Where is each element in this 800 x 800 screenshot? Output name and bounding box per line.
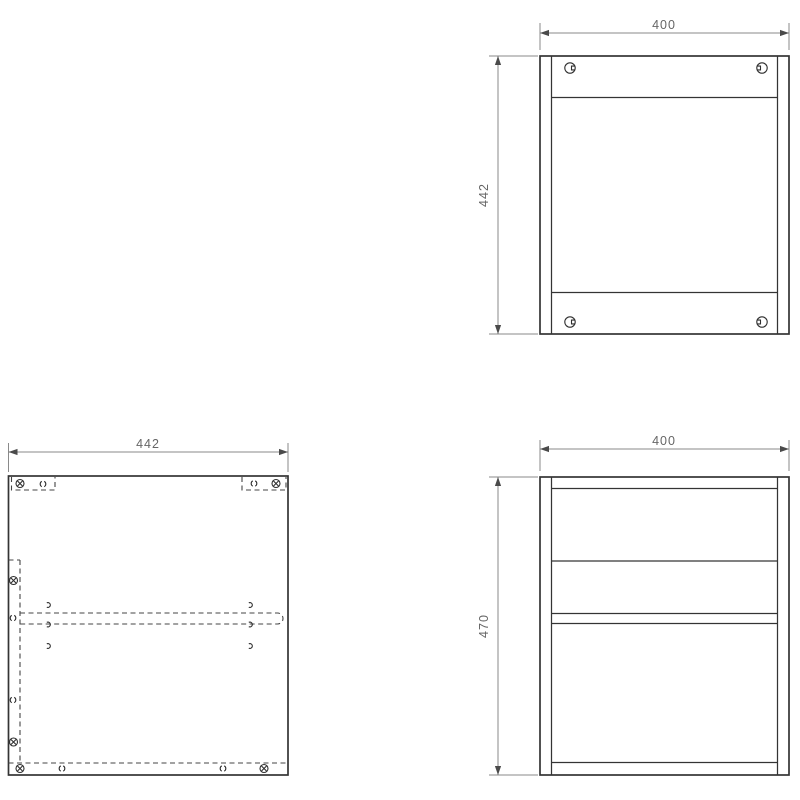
arrowhead-icon	[495, 477, 501, 486]
arrowhead-icon	[780, 30, 789, 36]
dowel-hole-icon	[40, 481, 46, 486]
front-height-dimension: 470	[477, 477, 538, 775]
dimension-value: 442	[477, 183, 491, 207]
pin-hole-icon	[249, 644, 253, 649]
technical-drawing-page: 400 442	[0, 0, 800, 800]
back-panel-view: 400 442	[477, 18, 789, 334]
top-left-fitting-outline	[12, 477, 56, 490]
back-width-dimension: 400	[540, 18, 789, 50]
arrowhead-icon	[9, 449, 18, 455]
pin-hole-icon	[249, 603, 253, 608]
cam-screw-icon	[757, 63, 767, 73]
dimension-value: 400	[652, 18, 676, 32]
dimension-value: 400	[652, 434, 676, 448]
dowel-hole-icon	[59, 766, 65, 771]
cam-lock-icon	[16, 480, 24, 488]
cam-screw-icon	[565, 317, 575, 327]
dimension-value: 470	[477, 614, 491, 638]
back-view-fasteners	[565, 63, 767, 327]
dowel-hole-icon	[220, 766, 226, 771]
cam-lock-icon	[272, 480, 280, 488]
front-view: 400 470	[477, 434, 789, 775]
arrowhead-icon	[780, 446, 789, 452]
pin-hole-icon	[47, 644, 51, 649]
left-rail-hidden-outline	[9, 560, 21, 762]
technical-drawing-canvas: 400 442	[0, 0, 800, 800]
arrowhead-icon	[279, 449, 288, 455]
front-outer-edge	[540, 477, 789, 775]
pin-hole-icon	[47, 603, 51, 608]
arrowhead-icon	[540, 30, 549, 36]
side-fasteners	[10, 480, 281, 773]
top-right-fitting-outline	[242, 477, 286, 490]
cam-lock-icon	[10, 738, 18, 746]
middle-rail-hidden-outline	[20, 613, 283, 624]
cam-lock-icon	[260, 765, 268, 773]
dowel-hole-icon	[10, 615, 16, 620]
side-panel-view: 442	[9, 437, 289, 775]
back-view-outline	[540, 56, 789, 334]
side-hidden-lines	[9, 477, 289, 763]
cam-lock-icon	[10, 577, 18, 585]
cam-screw-icon	[757, 317, 767, 327]
side-width-dimension: 442	[9, 437, 289, 472]
arrowhead-icon	[495, 56, 501, 65]
arrowhead-icon	[495, 325, 501, 334]
cam-lock-icon	[16, 765, 24, 773]
dowel-hole-icon	[10, 697, 16, 702]
front-view-outline	[540, 477, 789, 775]
arrowhead-icon	[540, 446, 549, 452]
front-width-dimension: 400	[540, 434, 789, 471]
dimension-value: 442	[136, 437, 160, 451]
cam-screw-icon	[565, 63, 575, 73]
dowel-hole-icon	[251, 481, 257, 486]
back-height-dimension: 442	[477, 56, 538, 334]
arrowhead-icon	[495, 766, 501, 775]
